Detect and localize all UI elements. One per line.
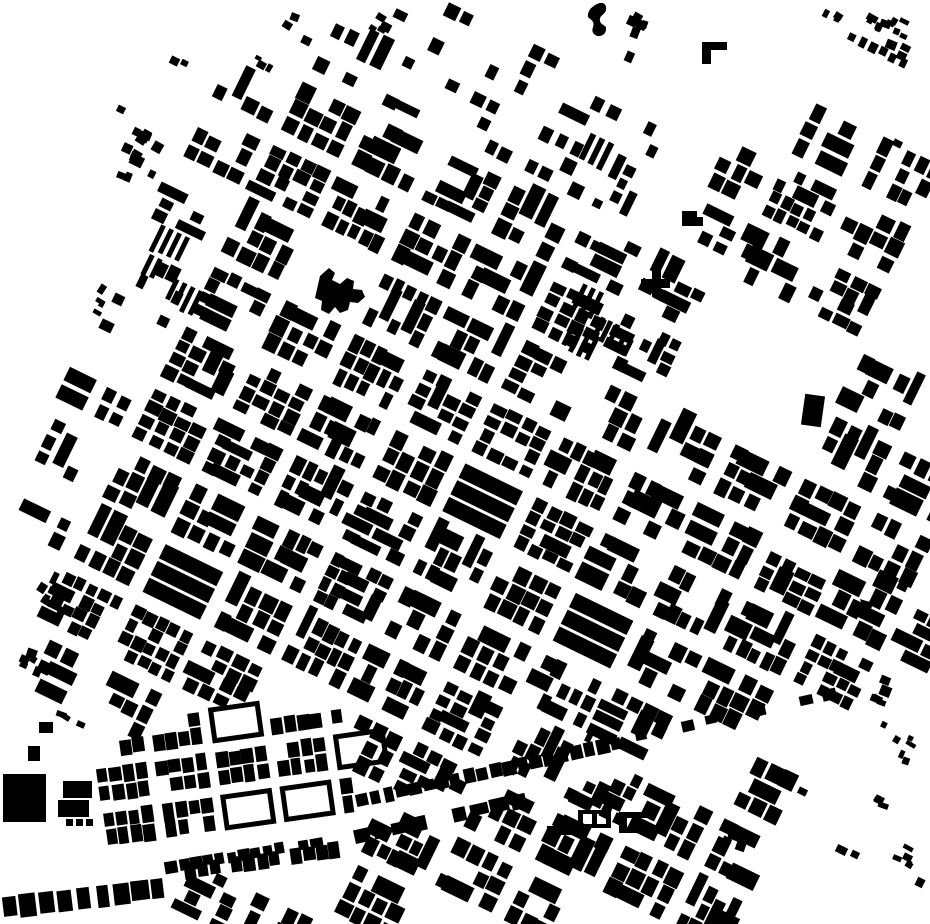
building <box>115 811 128 826</box>
building <box>203 815 216 832</box>
roadside-building <box>227 852 237 864</box>
roadside-building <box>202 854 214 866</box>
figure-ground-map <box>0 0 930 924</box>
roadside-building <box>262 845 273 856</box>
roadside-building <box>214 852 225 865</box>
building <box>135 762 148 780</box>
building <box>152 734 166 752</box>
building <box>108 766 123 782</box>
landmark-building <box>63 781 92 798</box>
building <box>215 751 230 769</box>
building <box>126 782 139 799</box>
roadside-building <box>150 878 164 899</box>
building <box>308 713 322 729</box>
building <box>339 777 353 794</box>
building <box>254 745 267 762</box>
landmark-building <box>39 722 53 733</box>
building <box>130 824 144 843</box>
building <box>140 804 154 823</box>
roadside-building <box>112 882 131 905</box>
building <box>164 732 178 751</box>
roadside-building <box>2 896 18 917</box>
building <box>178 819 189 835</box>
roadside-building <box>56 890 73 913</box>
double-courtyard-building <box>578 810 611 828</box>
roadside-building <box>298 840 309 851</box>
landmark-building <box>76 819 83 826</box>
landmark-building <box>58 800 89 817</box>
building <box>229 750 242 765</box>
building <box>178 731 191 746</box>
building <box>137 780 150 797</box>
roadside-building <box>76 887 91 910</box>
building <box>103 812 115 827</box>
building <box>154 760 169 776</box>
building <box>197 772 211 789</box>
building <box>327 841 340 859</box>
landmark-building <box>3 774 46 822</box>
building <box>119 739 133 756</box>
building <box>128 810 140 825</box>
roadside-building <box>249 847 261 859</box>
roadside-building <box>274 842 285 855</box>
building <box>218 770 231 786</box>
building <box>283 715 297 733</box>
building <box>131 736 145 752</box>
building <box>175 801 189 818</box>
building <box>230 767 244 784</box>
landmark-building <box>66 819 73 826</box>
building <box>111 784 125 801</box>
building <box>106 828 118 845</box>
roadside-building <box>18 892 37 917</box>
building <box>240 748 255 764</box>
landmark-building <box>801 394 825 427</box>
building <box>187 712 200 727</box>
building <box>313 737 326 752</box>
roadside-building <box>130 879 150 901</box>
building-footprint-svg <box>0 0 930 924</box>
building <box>96 768 108 783</box>
roadside-building <box>38 891 55 914</box>
building <box>331 709 343 724</box>
building <box>181 757 195 773</box>
building <box>304 759 316 773</box>
building <box>98 785 110 800</box>
landmark-building <box>86 819 93 826</box>
roadside-building <box>179 858 191 871</box>
roadside-building <box>189 856 204 870</box>
roadside-building <box>237 848 251 861</box>
building <box>200 797 214 813</box>
building <box>270 717 284 735</box>
building <box>286 742 300 758</box>
building <box>188 800 200 815</box>
building <box>257 763 271 779</box>
building <box>167 758 181 773</box>
building <box>169 776 183 791</box>
building <box>142 823 157 842</box>
roadside-building <box>164 860 179 874</box>
landmark-building <box>28 746 40 761</box>
building <box>277 760 291 777</box>
building <box>184 775 197 790</box>
